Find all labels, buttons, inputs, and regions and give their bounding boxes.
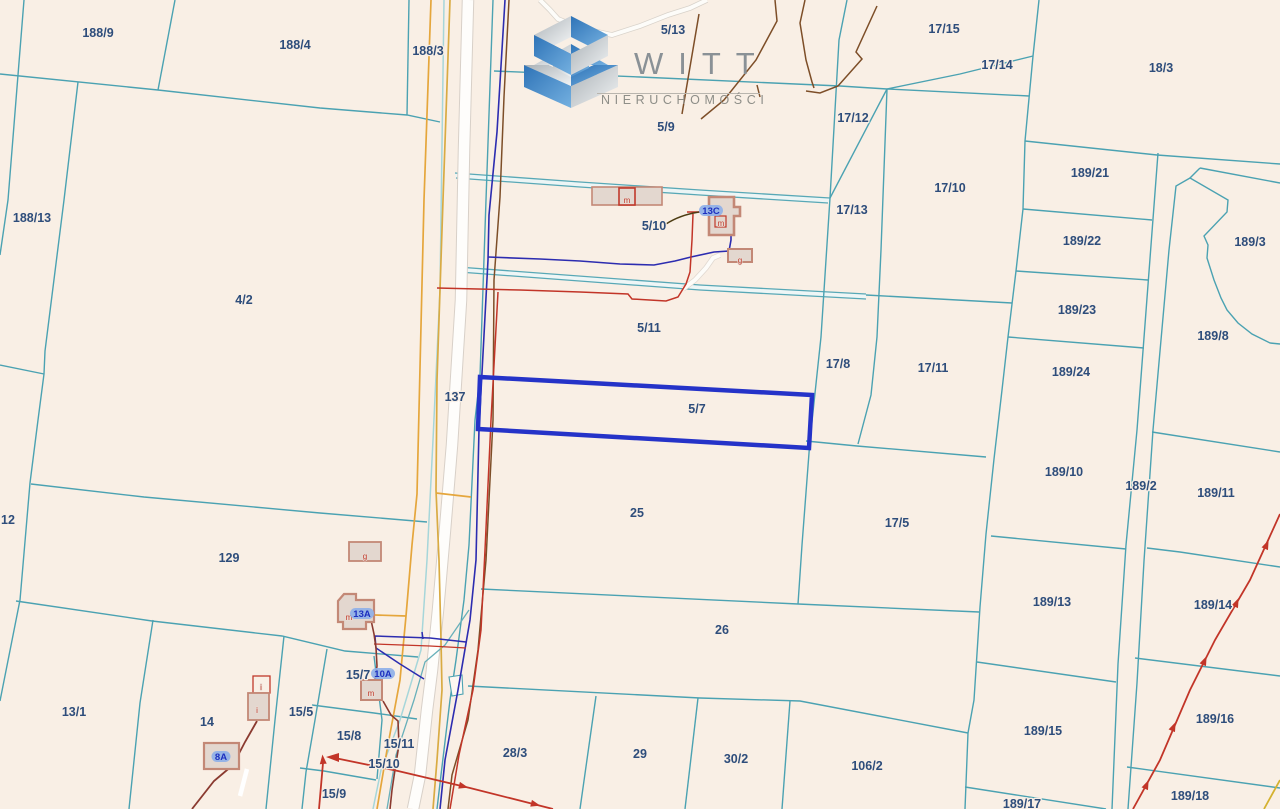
svg-text:15/9: 15/9 [322, 787, 346, 801]
svg-text:m: m [624, 196, 631, 205]
svg-text:13C: 13C [702, 206, 720, 217]
svg-text:17/12: 17/12 [837, 111, 868, 125]
svg-text:18/3: 18/3 [1149, 61, 1173, 75]
svg-text:5/10: 5/10 [642, 219, 666, 233]
svg-text:30/2: 30/2 [724, 752, 748, 766]
svg-text:15/11: 15/11 [384, 737, 415, 751]
svg-text:m: m [718, 219, 725, 228]
svg-text:13/1: 13/1 [62, 705, 86, 719]
svg-text:4/2: 4/2 [235, 293, 252, 307]
svg-text:28/3: 28/3 [503, 746, 527, 760]
svg-text:i: i [256, 706, 258, 715]
svg-text:189/22: 189/22 [1063, 234, 1101, 248]
svg-text:12: 12 [1, 513, 15, 527]
svg-text:15/5: 15/5 [289, 705, 313, 719]
svg-text:189/8: 189/8 [1197, 329, 1228, 343]
svg-text:15/10: 15/10 [368, 757, 399, 771]
svg-text:14: 14 [200, 715, 214, 729]
svg-text:189/15: 189/15 [1024, 724, 1062, 738]
svg-text:189/2: 189/2 [1125, 479, 1156, 493]
svg-text:17/10: 17/10 [934, 181, 965, 195]
svg-text:188/9: 188/9 [82, 26, 113, 40]
svg-text:15/7: 15/7 [346, 668, 370, 682]
svg-text:106/2: 106/2 [851, 759, 882, 773]
svg-text:5/11: 5/11 [637, 321, 661, 335]
svg-text:189/13: 189/13 [1033, 595, 1071, 609]
svg-text:17/8: 17/8 [826, 357, 850, 371]
svg-text:17/14: 17/14 [981, 58, 1012, 72]
svg-text:189/16: 189/16 [1196, 712, 1234, 726]
svg-text:5/9: 5/9 [657, 120, 674, 134]
svg-text:17/13: 17/13 [836, 203, 867, 217]
svg-text:189/11: 189/11 [1197, 486, 1235, 500]
svg-text:188/3: 188/3 [412, 44, 443, 58]
svg-text:10A: 10A [374, 669, 392, 680]
svg-text:26: 26 [715, 623, 729, 637]
svg-text:5/7: 5/7 [688, 402, 705, 416]
svg-text:15/8: 15/8 [337, 729, 361, 743]
svg-text:129: 129 [219, 551, 240, 565]
svg-text:NIERUCHOMOŚCI: NIERUCHOMOŚCI [601, 92, 768, 107]
svg-text:i: i [260, 683, 262, 692]
svg-text:17/5: 17/5 [885, 516, 909, 530]
svg-text:8A: 8A [215, 752, 227, 763]
svg-text:189/17: 189/17 [1003, 797, 1041, 809]
svg-text:5/13: 5/13 [661, 23, 685, 37]
svg-text:WITT: WITT [634, 46, 770, 81]
svg-text:189/14: 189/14 [1194, 598, 1232, 612]
svg-text:188/4: 188/4 [279, 38, 310, 52]
svg-text:g: g [738, 256, 742, 265]
svg-text:189/3: 189/3 [1234, 235, 1265, 249]
svg-text:25: 25 [630, 506, 644, 520]
svg-text:189/10: 189/10 [1045, 465, 1083, 479]
svg-text:189/18: 189/18 [1171, 789, 1209, 803]
svg-text:189/24: 189/24 [1052, 365, 1090, 379]
svg-text:g: g [363, 552, 367, 561]
svg-text:17/11: 17/11 [918, 361, 949, 375]
svg-text:m: m [368, 689, 375, 698]
svg-text:189/23: 189/23 [1058, 303, 1096, 317]
svg-text:137: 137 [445, 390, 466, 404]
svg-text:13A: 13A [353, 609, 371, 620]
svg-text:189/21: 189/21 [1071, 166, 1109, 180]
svg-text:17/15: 17/15 [928, 22, 959, 36]
svg-text:188/13: 188/13 [13, 211, 51, 225]
svg-text:29: 29 [633, 747, 647, 761]
